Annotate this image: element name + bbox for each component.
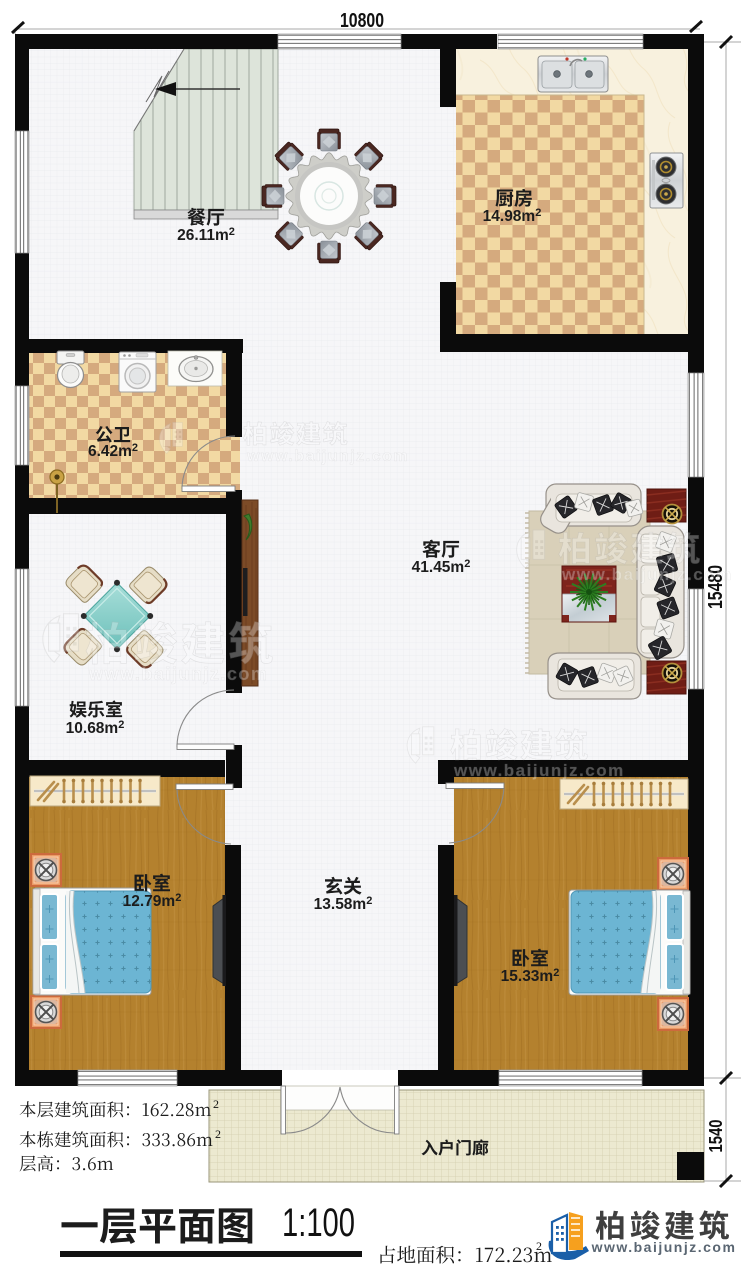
svg-text:15.33m2: 15.33m2 xyxy=(501,967,560,985)
svg-text:www.baijunjz.com: www.baijunjz.com xyxy=(246,448,409,465)
svg-text:2: 2 xyxy=(213,1097,219,1111)
svg-text:www.baijunjz.com: www.baijunjz.com xyxy=(561,565,733,584)
svg-text:www.baijunjz.com: www.baijunjz.com xyxy=(591,1239,737,1255)
svg-text:2: 2 xyxy=(536,1239,542,1253)
svg-text:www.baijunjz.com: www.baijunjz.com xyxy=(88,664,268,684)
svg-text:13.58m2: 13.58m2 xyxy=(314,895,373,913)
svg-text:41.45m2: 41.45m2 xyxy=(412,558,471,576)
svg-text:6.42m2: 6.42m2 xyxy=(88,442,138,460)
svg-text:12.79m2: 12.79m2 xyxy=(123,892,182,910)
svg-text:26.11m2: 26.11m2 xyxy=(177,226,235,244)
svg-text:www.baijunjz.com: www.baijunjz.com xyxy=(453,761,625,780)
svg-text:10800: 10800 xyxy=(340,10,384,32)
svg-text:10.68m2: 10.68m2 xyxy=(66,719,125,737)
svg-text:2: 2 xyxy=(215,1127,221,1141)
svg-text:14.98m2: 14.98m2 xyxy=(483,207,542,225)
svg-text:1:100: 1:100 xyxy=(282,1201,355,1245)
svg-text:1540: 1540 xyxy=(706,1120,726,1153)
